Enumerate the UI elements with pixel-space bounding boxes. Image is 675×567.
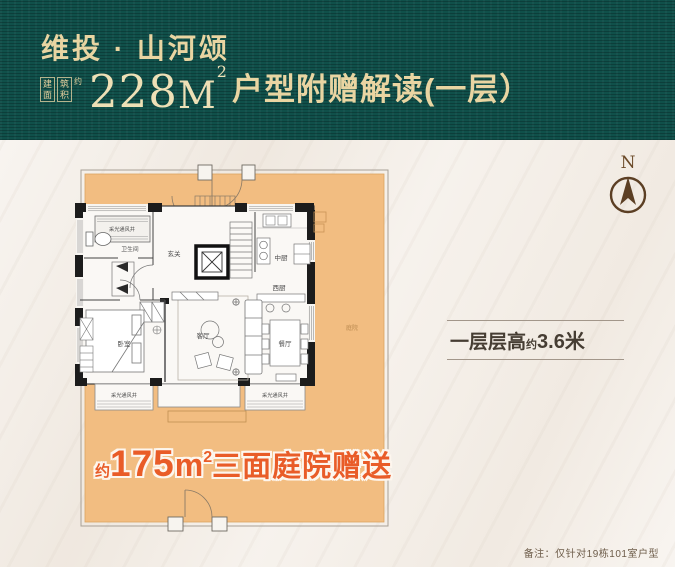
- room-label-foyer: 玄关: [168, 249, 182, 258]
- floor-height-prefix: 一层层高: [450, 332, 526, 353]
- area-value: 228: [89, 73, 178, 111]
- compass: N: [601, 155, 655, 221]
- area-approx-char: 约: [74, 76, 82, 87]
- brand-title: 维投 · 山河颂: [41, 27, 230, 67]
- elevator-icon: [196, 246, 228, 278]
- promo-unit: m: [175, 447, 203, 483]
- header-band: 维投 · 山河颂 建面 筑积 约 228 M 2 户型附赠解读(一层）: [0, 0, 675, 140]
- room-label-kitchen-cn: 中厨: [275, 253, 289, 262]
- bed-icon: [86, 310, 144, 372]
- headline-row: 建面 筑积 约 228 M 2 户型附赠解读(一层）: [40, 64, 531, 111]
- page-title: 户型附赠解读(一层）: [232, 64, 531, 109]
- promo-superscript: 2: [203, 449, 212, 466]
- compass-n-label: N: [601, 155, 655, 172]
- room-label-dining: 餐厅: [279, 339, 293, 348]
- floor-height-value: 3.6米: [537, 331, 585, 353]
- area-superscript: 2: [217, 62, 227, 81]
- room-label-lightwell-left: 采光通风井: [111, 391, 137, 399]
- room-label-bathroom: 卫生间: [121, 245, 139, 253]
- stairs-icon: [230, 222, 252, 278]
- promo-tail: 三面庭院赠送: [212, 451, 392, 483]
- area-unit: M: [178, 80, 216, 111]
- room-label-bedroom: 卧室: [118, 339, 132, 348]
- area-label-col1: 建面: [40, 77, 55, 102]
- promo-approx: 约: [95, 463, 110, 480]
- promo-text: 约175m2三面庭院赠送: [95, 443, 367, 485]
- bar-counter-icon: [257, 294, 305, 302]
- room-label-kitchen-west: 西厨: [273, 284, 287, 292]
- room-label-lightwell-top: 采光通风井: [109, 225, 135, 233]
- floor-height-approx: 约: [526, 339, 537, 351]
- room-label-lightwell-right: 采光通风井: [262, 391, 288, 399]
- toilet-icon: [86, 232, 111, 246]
- room-label-living: 客厅: [197, 331, 211, 340]
- ceiling-fan-icon: [153, 326, 161, 334]
- stove-icon: [257, 238, 270, 264]
- sideboard-icon: [276, 374, 296, 381]
- area-vertical-label: 建面 筑积 约: [40, 77, 82, 102]
- area-label-col2: 筑积: [57, 77, 72, 102]
- promo-value: 175: [110, 443, 175, 484]
- poster-canvas: 维投 · 山河颂 建面 筑积 约 228 M 2 户型附赠解读(一层） N: [0, 0, 675, 567]
- sofa-icon: [245, 300, 262, 374]
- floor-height-note: 一层层高约3.6米: [447, 320, 624, 360]
- disclaimer-note: 备注：仅针对19栋101室户型: [524, 545, 659, 560]
- compass-icon: [606, 172, 650, 216]
- courtyard-label: 庭院: [346, 324, 358, 332]
- tv-bench-icon: [172, 292, 218, 300]
